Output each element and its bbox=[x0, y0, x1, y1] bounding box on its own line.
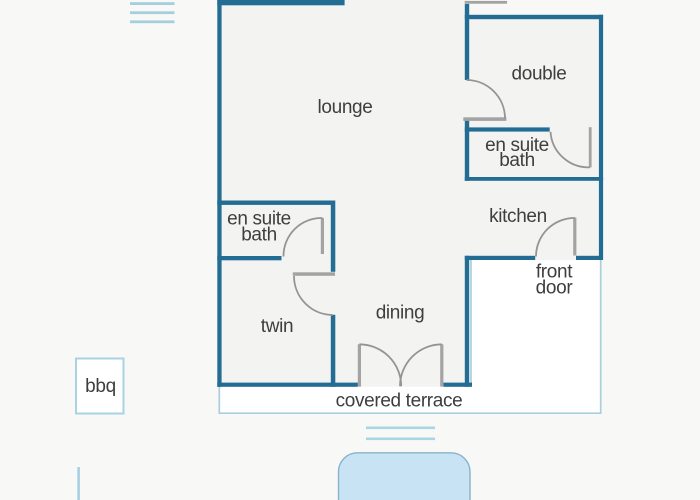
svg-text:kitchen: kitchen bbox=[489, 206, 547, 227]
svg-text:double: double bbox=[512, 64, 567, 85]
svg-text:door: door bbox=[536, 278, 574, 299]
svg-text:twin: twin bbox=[261, 316, 293, 337]
svg-text:bath: bath bbox=[241, 225, 277, 246]
svg-text:bbq: bbq bbox=[85, 376, 116, 397]
svg-text:covered terrace: covered terrace bbox=[336, 391, 463, 412]
svg-text:lounge: lounge bbox=[318, 97, 373, 118]
svg-text:bath: bath bbox=[499, 150, 535, 171]
svg-text:dining: dining bbox=[376, 303, 425, 324]
